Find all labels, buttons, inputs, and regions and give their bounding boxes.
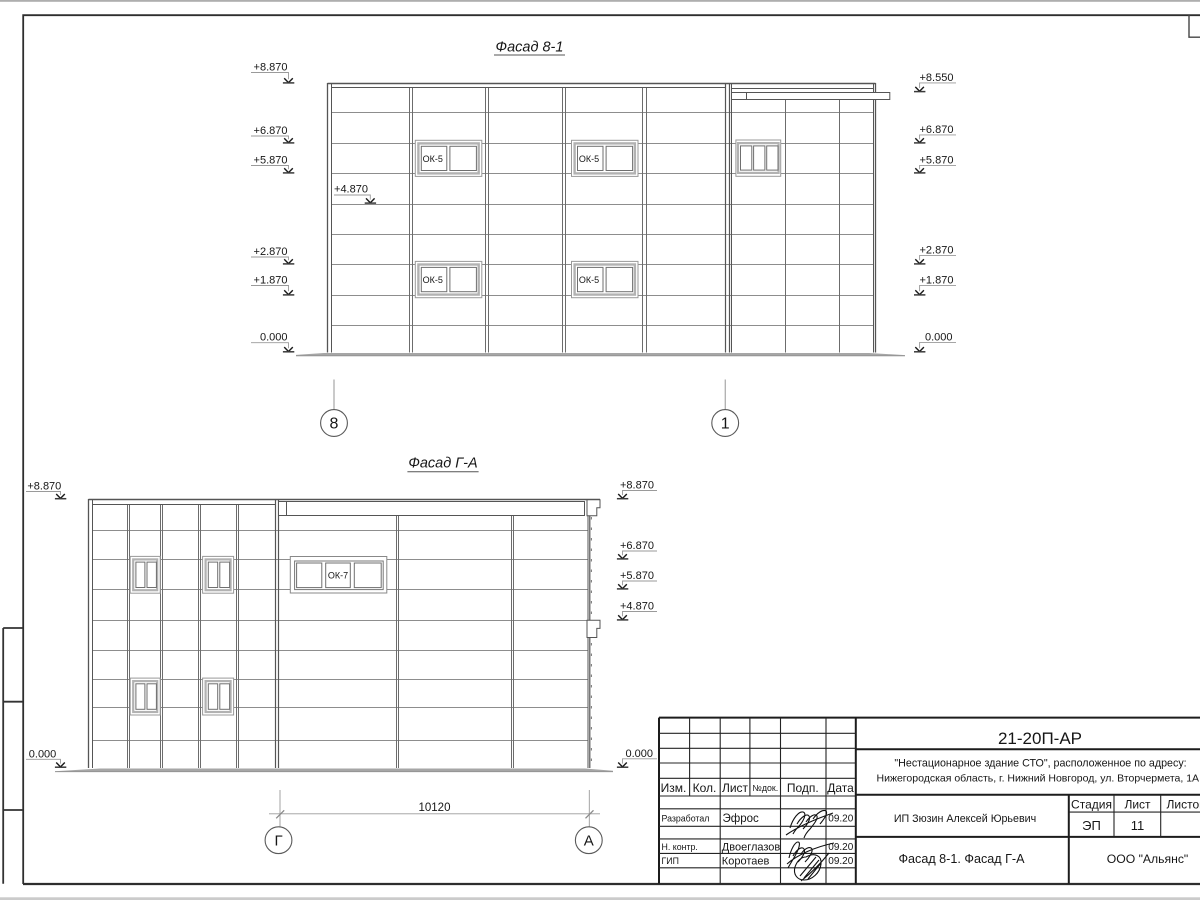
svg-text:+6.870: +6.870: [920, 124, 954, 136]
svg-text:+8.870: +8.870: [620, 480, 654, 492]
svg-text:0.000: 0.000: [626, 748, 654, 760]
svg-text:Фасад Г-А: Фасад Г-А: [408, 456, 477, 472]
svg-text:+1.870: +1.870: [920, 274, 954, 286]
svg-text:ОК-7: ОК-7: [328, 570, 348, 580]
svg-text:Коротаев: Коротаев: [722, 856, 770, 868]
svg-text:Лист: Лист: [1124, 798, 1151, 812]
svg-text:09.20: 09.20: [828, 856, 853, 867]
svg-text:Листов: Листов: [1167, 798, 1200, 812]
svg-text:Подп.: Подп.: [787, 781, 819, 795]
svg-text:+6.870: +6.870: [620, 540, 654, 552]
svg-text:+4.870: +4.870: [334, 184, 368, 196]
svg-text:+5.870: +5.870: [920, 154, 954, 166]
svg-text:"Нестационарное здание СТО", р: "Нестационарное здание СТО", расположенн…: [894, 757, 1186, 769]
svg-text:21-20П-АР: 21-20П-АР: [998, 729, 1082, 748]
svg-text:+2.870: +2.870: [254, 246, 288, 258]
svg-text:Кол.: Кол.: [693, 781, 717, 795]
svg-text:+5.870: +5.870: [620, 570, 654, 582]
svg-text:Двоеглазов: Двоеглазов: [722, 842, 781, 854]
svg-text:Изм.: Изм.: [661, 781, 687, 795]
svg-text:09.20: 09.20: [828, 813, 853, 824]
svg-text:Лист: Лист: [722, 781, 749, 795]
svg-text:ООО "Альянс": ООО "Альянс": [1107, 852, 1189, 866]
svg-text:Стадия: Стадия: [1071, 798, 1112, 812]
svg-text:ГИП: ГИП: [662, 856, 679, 866]
svg-text:А: А: [584, 833, 594, 850]
svg-text:+4.870: +4.870: [620, 601, 654, 613]
svg-text:ОК-5: ОК-5: [423, 154, 443, 164]
svg-text:+2.870: +2.870: [920, 244, 954, 256]
svg-text:ОК-5: ОК-5: [579, 154, 599, 164]
svg-text:ИП Зюзин Алексей Юрьевич: ИП Зюзин Алексей Юрьевич: [894, 813, 1036, 825]
svg-text:+5.870: +5.870: [254, 155, 288, 167]
svg-text:1: 1: [721, 416, 730, 433]
svg-text:ОК-5: ОК-5: [579, 275, 599, 285]
svg-text:ОК-5: ОК-5: [423, 275, 443, 285]
svg-text:+8.870: +8.870: [254, 62, 288, 74]
svg-text:10120: 10120: [419, 802, 451, 814]
svg-text:+6.870: +6.870: [254, 125, 288, 137]
svg-text:№док.: №док.: [752, 783, 778, 793]
svg-text:Фасад 8-1. Фасад Г-А: Фасад 8-1. Фасад Г-А: [898, 852, 1025, 866]
svg-text:Разработал: Разработал: [662, 814, 710, 824]
svg-text:8: 8: [330, 416, 339, 433]
svg-text:+1.870: +1.870: [254, 275, 288, 287]
svg-text:11: 11: [1131, 818, 1145, 833]
svg-text:0.000: 0.000: [925, 331, 953, 343]
svg-text:Нижегородская область, г. Нижн: Нижегородская область, г. Нижний Новгоро…: [877, 772, 1200, 784]
svg-text:0.000: 0.000: [260, 332, 288, 344]
svg-text:+8.870: +8.870: [27, 481, 61, 493]
svg-text:0.000: 0.000: [29, 748, 57, 760]
svg-text:ЭП: ЭП: [1082, 818, 1101, 833]
svg-text:Дата: Дата: [827, 781, 854, 795]
svg-text:Н. контр.: Н. контр.: [662, 842, 698, 852]
svg-text:Фасад 8-1: Фасад 8-1: [496, 40, 564, 56]
svg-text:Эфрос: Эфрос: [723, 813, 760, 825]
svg-text:Г: Г: [274, 833, 282, 850]
svg-text:+8.550: +8.550: [920, 72, 954, 84]
